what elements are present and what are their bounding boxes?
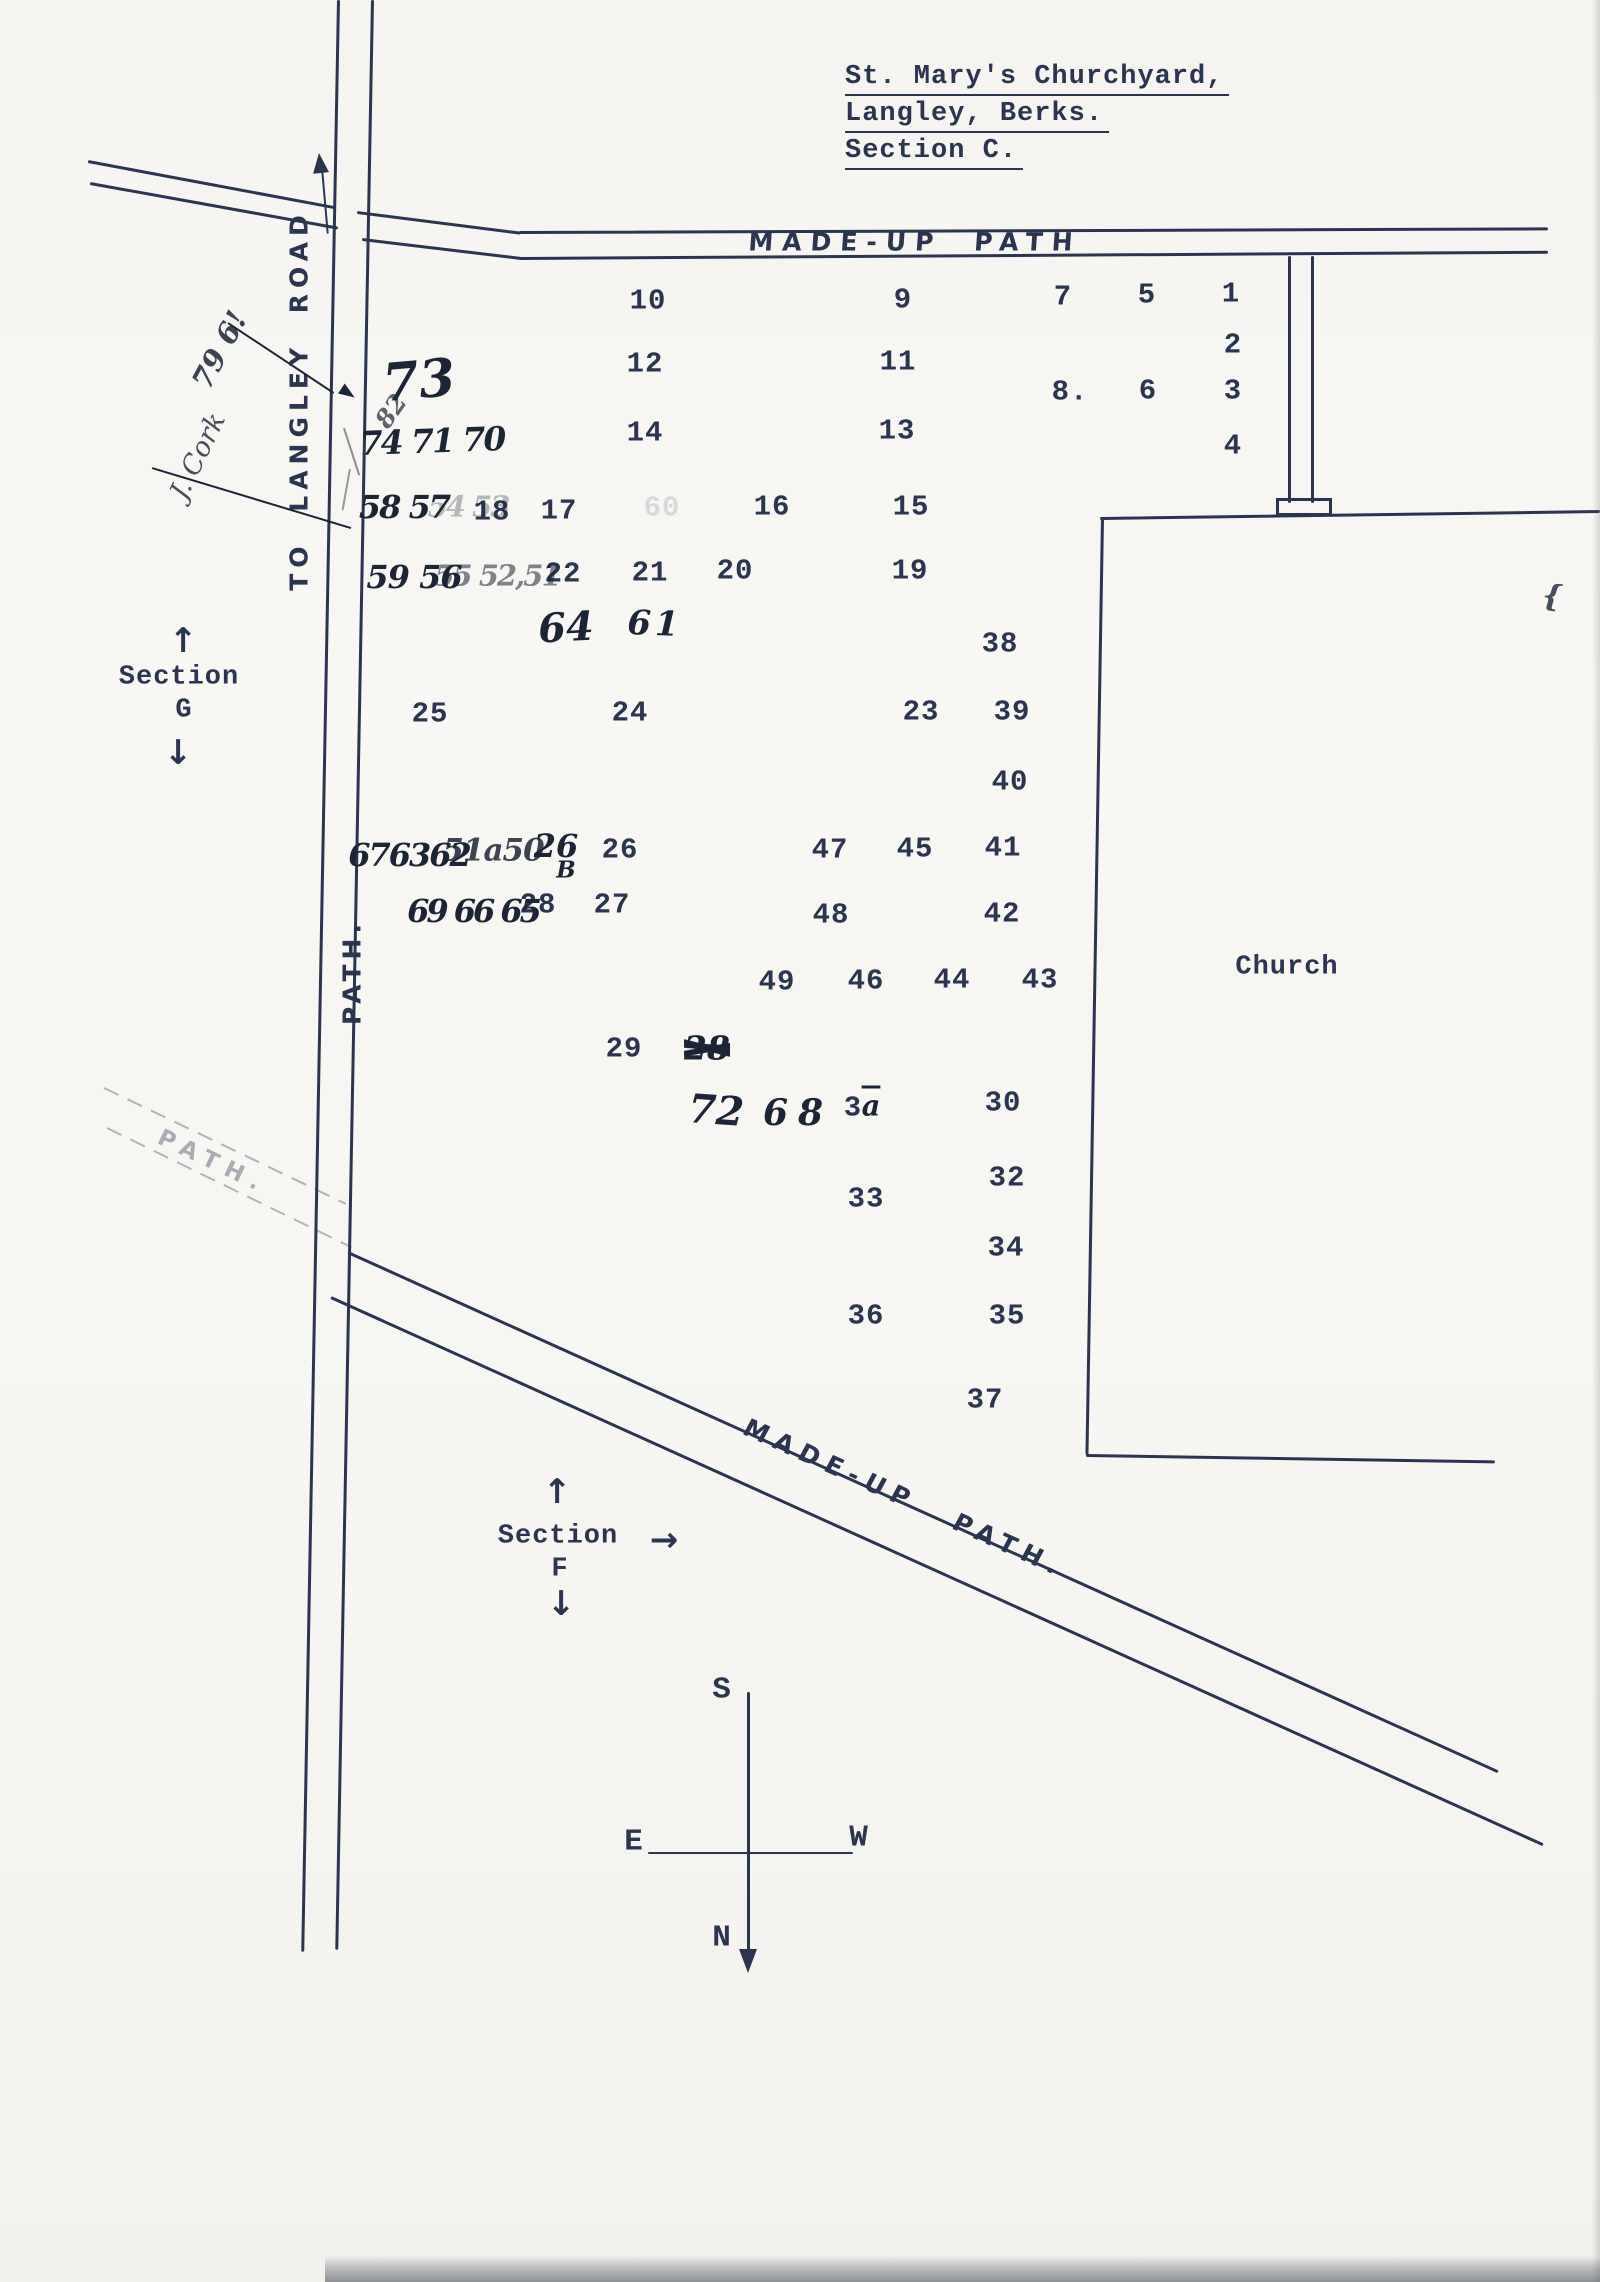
mark-60: 60	[644, 494, 681, 523]
mark-54-53: 54 53	[428, 493, 509, 522]
mark-14: 14	[627, 419, 664, 448]
mark-35: 35	[989, 1302, 1026, 1331]
mark-15: 15	[893, 493, 930, 522]
mark-45: 45	[897, 835, 934, 864]
mark-39: 39	[994, 698, 1031, 727]
mark-41: 41	[985, 834, 1022, 863]
scan-artifact-right-edge	[1592, 0, 1600, 2282]
mark-64: 64	[537, 607, 595, 650]
mark-26: 26	[602, 836, 639, 865]
mark-72: 72	[687, 1089, 745, 1133]
mark-42: 42	[984, 900, 1021, 929]
mark-51a50: 51a50	[442, 836, 543, 867]
mark-44: 44	[934, 966, 971, 995]
mark-3: 3	[1224, 377, 1242, 406]
mark-40: 40	[992, 768, 1029, 797]
mark-J-Cork: J. Cork	[166, 409, 231, 504]
mark-68: 68	[763, 1095, 833, 1131]
mark-12: 12	[627, 350, 664, 379]
mark-43: 43	[1022, 966, 1059, 995]
scan-artifact-bottom	[325, 2256, 1600, 2282]
mark-4: 4	[1224, 432, 1242, 461]
mark-8-: 8.	[1052, 378, 1089, 407]
mark-37: 37	[967, 1386, 1004, 1415]
marks-layer: 109751212118.631413418176016152221201938…	[0, 0, 1600, 2282]
mark-48: 48	[813, 901, 850, 930]
mark-19: 19	[892, 557, 929, 586]
mark-6: 6	[1139, 377, 1157, 406]
mark-33: 33	[848, 1185, 885, 1214]
mark-74-71-70: 74 71 70	[359, 422, 505, 460]
mark-47: 47	[812, 836, 849, 865]
mark-20: 20	[717, 557, 754, 586]
mark-38: 38	[982, 630, 1019, 659]
mark-36: 36	[848, 1302, 885, 1331]
mark-5: 5	[1138, 281, 1156, 310]
mark-27: 27	[594, 891, 631, 920]
mark-21: 21	[632, 559, 669, 588]
mark-34: 34	[988, 1234, 1025, 1263]
mark--: {	[1541, 581, 1563, 613]
mark-a: a	[862, 1092, 881, 1121]
mark-30: 30	[985, 1089, 1022, 1118]
mark-28: 28	[684, 1032, 730, 1065]
mark-B: B	[556, 859, 575, 882]
mark-9: 9	[894, 286, 912, 315]
mark-1: 1	[1222, 280, 1240, 309]
mark-17: 17	[541, 497, 578, 526]
mark-3: 3	[844, 1094, 862, 1123]
mark-61: 61	[627, 606, 683, 642]
mark-2: 2	[1224, 331, 1242, 360]
mark-79-6-: 79 6!	[188, 306, 253, 393]
churchyard-plan-page: St. Mary's Churchyard, Langley, Berks. S…	[0, 0, 1600, 2282]
mark-16: 16	[754, 493, 791, 522]
mark-32: 32	[989, 1164, 1026, 1193]
mark-7: 7	[1054, 283, 1072, 312]
mark-13: 13	[879, 417, 916, 446]
mark-24: 24	[612, 699, 649, 728]
mark-10: 10	[630, 287, 667, 316]
mark-55-52-51: 55 52,51	[434, 562, 559, 591]
mark-49: 49	[759, 968, 796, 997]
mark-11: 11	[880, 348, 917, 377]
mark-29: 29	[606, 1035, 643, 1064]
mark-23: 23	[903, 698, 940, 727]
mark-46: 46	[848, 967, 885, 996]
mark-69-66-65: 69 66 65	[407, 895, 539, 927]
mark-25: 25	[412, 700, 449, 729]
